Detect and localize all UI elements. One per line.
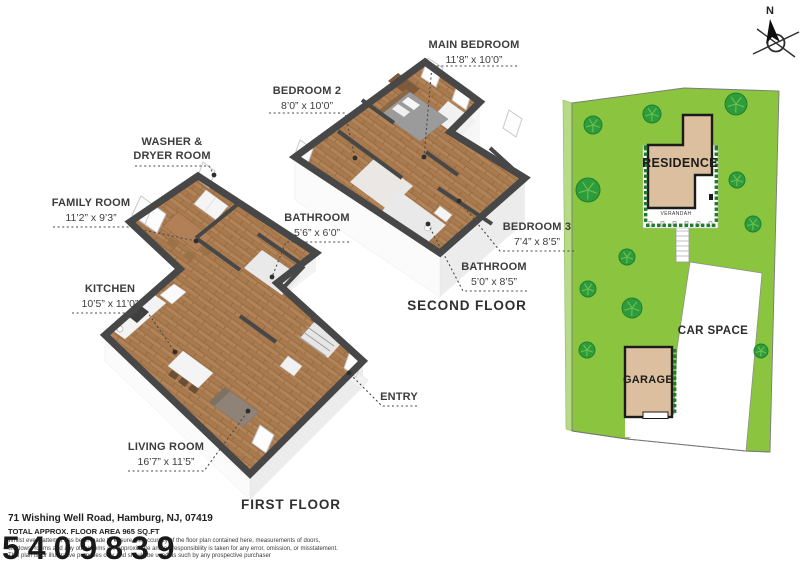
room-name-line2: DRYER ROOM (133, 150, 210, 164)
garage-label: GARAGE (623, 374, 673, 386)
tree-icon (725, 93, 747, 115)
room-label-living-room: LIVING ROOM16’7” x 11’5” (128, 441, 204, 469)
address-line: 71 Wishing Well Road, Hamburg, NJ, 07419 (8, 513, 213, 524)
room-label-washer-dryer: WASHER &DRYER ROOM (133, 136, 210, 163)
car-space-label: CAR SPACE (678, 325, 748, 337)
tree-icon (579, 342, 595, 358)
tree-icon (729, 172, 745, 188)
watermark-id: 5409839 (2, 530, 183, 567)
room-label-bedroom-3: BEDROOM 37’4” x 8’5” (503, 221, 571, 249)
residence-label: RESIDENCE (642, 156, 718, 170)
room-dimensions: 5’6” x 6’0” (284, 227, 350, 241)
garage-door (643, 412, 668, 419)
tree-icon (754, 344, 768, 358)
tree-icon (622, 298, 642, 318)
tree-icon (584, 116, 602, 134)
first-floor-title: FIRST FLOOR (241, 497, 341, 512)
room-label-kitchen: KITCHEN10’5” x 11’0” (81, 283, 138, 311)
room-label-main-bedroom: MAIN BEDROOM11’8” x 10’0” (428, 39, 519, 67)
residence-door-mark (709, 194, 713, 200)
room-label-entry: ENTRY (380, 391, 418, 405)
room-label-bathroom-2: BATHROOM5’0” x 8’5” (461, 261, 527, 289)
tree-icon (580, 281, 596, 297)
room-dimensions: 10’5” x 11’0” (81, 298, 138, 312)
room-name: BATHROOM (284, 212, 350, 226)
tree-icon (643, 105, 661, 123)
room-name: LIVING ROOM (128, 441, 204, 455)
room-dimensions: 8’0” x 10’0” (273, 100, 341, 114)
second-floor-title: SECOND FLOOR (407, 298, 527, 313)
lawn-edge-strip (563, 100, 572, 431)
room-name: BEDROOM 2 (273, 85, 341, 99)
room-dimensions: 11’2” x 9’3” (52, 212, 131, 226)
room-name: KITCHEN (81, 283, 138, 297)
room-dimensions: 7’4” x 8’5” (503, 236, 571, 250)
tree-icon (619, 249, 635, 265)
room-label-bathroom: BATHROOM5’6” x 6’0” (284, 212, 350, 240)
room-label-family-room: FAMILY ROOM11’2” x 9’3” (52, 197, 131, 225)
tree-icon (745, 216, 761, 232)
door-panel (503, 110, 522, 137)
steps (676, 226, 689, 262)
room-name: FAMILY ROOM (52, 197, 131, 211)
room-name: WASHER & (133, 136, 210, 150)
room-name: MAIN BEDROOM (428, 39, 519, 53)
room-dimensions: 11’8” x 10’0” (428, 54, 519, 68)
verandah-label: VERANDAH (661, 211, 692, 217)
room-dimensions: 16’7” x 11’5” (128, 456, 204, 470)
compass-north-label: N (766, 5, 774, 17)
tree-icon (576, 178, 600, 202)
room-name: BATHROOM (461, 261, 527, 275)
room-name: BEDROOM 3 (503, 221, 571, 235)
compass-rose-icon (753, 19, 799, 57)
site-plan (563, 88, 779, 452)
driveway (625, 417, 671, 440)
room-label-bedroom-2: BEDROOM 28’0” x 10’0” (273, 85, 341, 113)
room-dimensions: 5’0” x 8’5” (461, 276, 527, 290)
room-name: ENTRY (380, 391, 418, 405)
